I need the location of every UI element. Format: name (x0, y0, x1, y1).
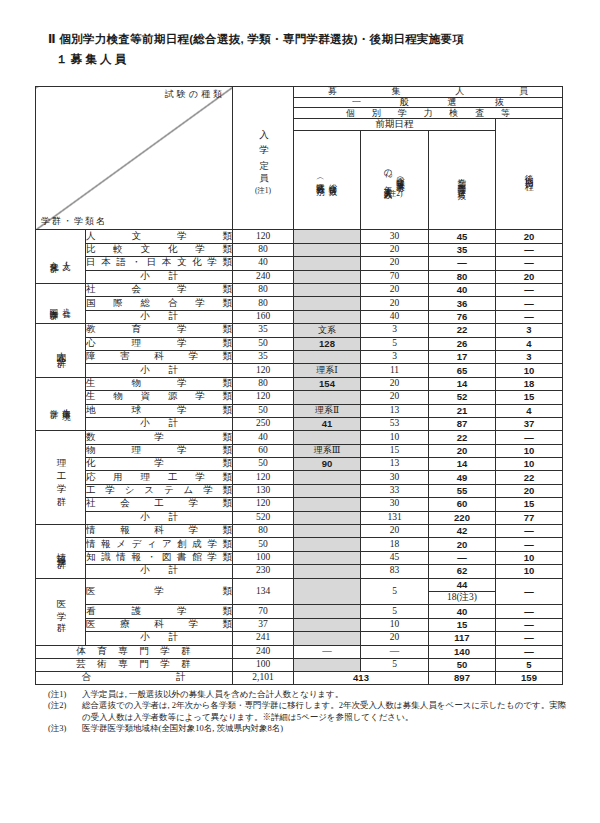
cell-late-schedule: 20 (496, 484, 563, 497)
cell-comprehensive-selection (294, 284, 361, 297)
cell-school-selection: 20 (429, 444, 496, 457)
table-row: 小 計25041538737 (36, 417, 563, 430)
group-label: 社会・ 国際学群 (36, 284, 86, 324)
cell-second-year-intake: 20 (361, 297, 429, 310)
cell-comprehensive-selection: 128 (294, 337, 361, 350)
cell-name: 医 療 科 学 類 (86, 618, 233, 631)
note-item: (注1)入学定員は, 一般選抜以外の募集人員を含めた合計人数となります。 (48, 689, 570, 701)
cell-name: 生 物 資 源 学 類 (86, 391, 233, 404)
cell-comprehensive-selection (294, 243, 361, 256)
cell-late-schedule: 18 (496, 377, 563, 390)
cell-late-schedule: — (496, 297, 563, 310)
header-admission-capacity: 入学定員 (注1) (233, 87, 294, 230)
table-row: 比 較 文 化 学 類802035— (36, 243, 563, 256)
cell-name: 工 学 シ ス テ ム 学 類 (86, 484, 233, 497)
cell-admission-capacity: 50 (233, 404, 294, 417)
cell-second-year-intake: 5 (361, 658, 429, 671)
general-selection-label: 一 般 選 抜 (294, 98, 562, 107)
table-row: 知 識 情 報 ・ 図 書 館 学 類10045—10 (36, 551, 563, 564)
cell-late-schedule: — (496, 645, 563, 658)
cell-admission-capacity: 2,101 (233, 671, 294, 684)
cell-comprehensive-selection (294, 538, 361, 551)
table-row: 小 計120理系Ⅰ116510 (36, 364, 563, 377)
table-row: 医学群医 学 類134544— (36, 578, 563, 591)
cell-second-year-intake: 5 (361, 578, 429, 605)
cell-name: 心 理 学 類 (86, 337, 233, 350)
cell-admission-capacity: 120 (233, 364, 294, 377)
cell-admission-capacity: 130 (233, 484, 294, 497)
cell-name: 応 用 理 工 学 類 (86, 471, 233, 484)
table-row: 小 計24120117— (36, 632, 563, 645)
table-row: 日 本 語 ・ 日 本 文 化 学 類4020—— (36, 257, 563, 270)
cell-school-selection: 22 (429, 431, 496, 444)
table-row: 国 際 総 合 学 類802036— (36, 297, 563, 310)
cell-school-selection: 40 (429, 284, 496, 297)
table-row: 生 物 資 源 学 類120205215 (36, 391, 563, 404)
note-item: (注2)総合選抜での入学者は, 2年次から各学類・専門学群に移行します。2年次受… (48, 700, 570, 723)
cell-name: 地 球 学 類 (86, 404, 233, 417)
cell-school-selection: 44 (429, 578, 496, 591)
table-row: 社 会 工 学 類120306015 (36, 498, 563, 511)
group-label-text: 社会・ 国際学群 (48, 302, 73, 306)
cell-second-year-intake: 20 (361, 525, 429, 538)
cell-comprehensive-selection (294, 270, 361, 283)
cell-comprehensive-selection: 理系Ⅰ (294, 364, 361, 377)
cell-name: 知 識 情 報 ・ 図 書 館 学 類 (86, 551, 233, 564)
cell-admission-capacity: 120 (233, 391, 294, 404)
cell-late-schedule: — (496, 525, 563, 538)
cell-late-schedule: — (496, 605, 563, 618)
cell-late-schedule: — (496, 310, 563, 323)
table-body: 人文・ 文化学群人 文 学 類120304520比 較 文 化 学 類80203… (36, 230, 563, 684)
cell-school-selection: 117 (429, 632, 496, 645)
table-row: 応 用 理 工 学 類120304922 (36, 471, 563, 484)
recruitment-table: 試験の種類 学群・学類名 入学定員 (注1) 募 集 人 員 一 般 選 抜 個… (35, 86, 563, 685)
cell-admission-capacity: 80 (233, 297, 294, 310)
cell-school-selection: 87 (429, 417, 496, 430)
group-label: 理工学群 (36, 431, 86, 525)
cell-admission-capacity: 100 (233, 658, 294, 671)
note-text: 総合選抜での入学者は, 2年次から各学類・専門学群に移行します。2年次受入人数は… (82, 700, 570, 723)
cell-late-schedule: — (496, 632, 563, 645)
cell-late-schedule: 5 (496, 658, 563, 671)
cell-name: 小 計 (86, 417, 233, 430)
cell-school-selection: 65 (429, 364, 496, 377)
cell-school-selection: 21 (429, 404, 496, 417)
cell-name: 体 育 専 門 学 群 (36, 645, 233, 658)
page-title: Ⅱ 個別学力検査等前期日程(総合選抜, 学類・専門学群選抜)・後期日程実施要項 (48, 32, 590, 47)
table-row: 生命環境 学群生 物 学 類80154201418 (36, 377, 563, 390)
cell-admission-capacity: 35 (233, 324, 294, 337)
cell-second-year-intake: 11 (361, 364, 429, 377)
cell-second-year-intake: 30 (361, 230, 429, 243)
cell-late-schedule: — (496, 243, 563, 256)
cell-comprehensive-selection: 理系Ⅱ (294, 404, 361, 417)
cell-school-selection: 55 (429, 484, 496, 497)
header-school-selection: 学類・専門学群選抜 (429, 131, 496, 230)
cell-school-selection: 14 (429, 377, 496, 390)
cell-school-selection: 45 (429, 230, 496, 243)
cell-school-selection: 42 (429, 525, 496, 538)
comprehensive-selection-label: 総合選抜 （選抜区分別） (315, 175, 340, 182)
cell-second-year-intake: 5 (361, 337, 429, 350)
admission-capacity-label: 入学定員 (258, 122, 268, 182)
second-year-intake-note: (注2) (361, 190, 428, 198)
cell-admission-capacity: 520 (233, 511, 294, 524)
cell-admission-capacity: 240 (233, 645, 294, 658)
cell-second-year-intake: 20 (361, 632, 429, 645)
cell-comprehensive-selection: 文系 (294, 324, 361, 337)
cell-second-year-intake: 3 (361, 324, 429, 337)
cell-comprehensive-selection (294, 551, 361, 564)
cell-late-schedule: 20 (496, 270, 563, 283)
cell-name: 人 文 学 類 (86, 230, 233, 243)
cell-second-year-intake: 131 (361, 511, 429, 524)
cell-second-year-intake: 30 (361, 471, 429, 484)
late-schedule-label: 後期日程 (523, 167, 536, 179)
cell-late-schedule: 15 (496, 391, 563, 404)
table-row: 地 球 学 類50理系Ⅱ13214 (36, 404, 563, 417)
cell-late-schedule: 10 (496, 458, 563, 471)
cell-school-selection: 22 (429, 324, 496, 337)
cell-name: 物 理 学 類 (86, 444, 233, 457)
table-row: 医 療 科 学 類371015— (36, 618, 563, 631)
cell-comprehensive-selection: 90 (294, 458, 361, 471)
cell-second-year-intake: 18 (361, 538, 429, 551)
table-row: 小 計1604076— (36, 310, 563, 323)
note-text: 入学定員は, 一般選抜以外の募集人員を含めた合計人数となります。 (82, 689, 570, 701)
cell-school-selection: — (429, 551, 496, 564)
group-label-text: 情報学群 (56, 545, 66, 555)
cell-name: 小 計 (86, 310, 233, 323)
cell-admission-capacity: 60 (233, 444, 294, 457)
cell-comprehensive-selection (294, 350, 361, 363)
corner-cell: 試験の種類 学群・学類名 (36, 87, 233, 230)
cell-school-selection: 14 (429, 458, 496, 471)
cell-late-schedule: 15 (496, 498, 563, 511)
note-item: (注3)医学群医学類地域枠(全国対象10名, 茨城県内対象8名) (48, 723, 570, 735)
table-row: 人文・ 文化学群人 文 学 類120304520 (36, 230, 563, 243)
cell-school-selection: 60 (429, 498, 496, 511)
cell-admission-capacity: 100 (233, 551, 294, 564)
cell-late-schedule: 20 (496, 230, 563, 243)
cell-school-selection: 897 (429, 671, 496, 684)
cell-second-year-intake: 10 (361, 431, 429, 444)
cell-second-year-intake: 5 (361, 605, 429, 618)
cell-name: 小 計 (86, 632, 233, 645)
cell-comprehensive-selection (294, 230, 361, 243)
cell-late-schedule: — (496, 431, 563, 444)
note-tag: (注2) (48, 700, 82, 723)
cell-admission-capacity: 80 (233, 243, 294, 256)
cell-second-year-intake: 13 (361, 404, 429, 417)
cell-name: 日 本 語 ・ 日 本 文 化 学 類 (86, 257, 233, 270)
cell-second-year-intake: 53 (361, 417, 429, 430)
table-row: 看 護 学 類70540— (36, 605, 563, 618)
cell-name: 数 学 類 (86, 431, 233, 444)
table-row: 心 理 学 類501285264 (36, 337, 563, 350)
header-early-schedule: 前期日程 (294, 119, 496, 131)
cell-name: 小 計 (86, 364, 233, 377)
cell-second-year-intake: 20 (361, 391, 429, 404)
cell-second-year-intake: 40 (361, 310, 429, 323)
group-label: 医学群 (36, 578, 86, 645)
header-individual-exam: 個 別 学 力 検 査 等 (294, 108, 563, 119)
cell-second-year-intake: 45 (361, 551, 429, 564)
cell-comprehensive-selection (294, 632, 361, 645)
table-row: 情 報 メ デ ィ ア 創 成 学 類501820— (36, 538, 563, 551)
table-row: 小 計240708020 (36, 270, 563, 283)
cell-name: 社 会 工 学 類 (86, 498, 233, 511)
cell-early-schedule-total: 413 (294, 671, 429, 684)
cell-name: 小 計 (86, 565, 233, 578)
cell-second-year-intake: — (361, 645, 429, 658)
cell-name: 小 計 (86, 270, 233, 283)
admission-capacity-note: (注1) (233, 187, 293, 195)
cell-comprehensive-selection (294, 310, 361, 323)
group-label-text: 人文・ 文化学群 (48, 255, 73, 259)
cell-name: 生 物 学 類 (86, 377, 233, 390)
cell-admission-capacity: 230 (233, 565, 294, 578)
cell-name: 合 計 (36, 671, 233, 684)
cell-late-schedule: — (496, 284, 563, 297)
cell-late-schedule: 159 (496, 671, 563, 684)
cell-late-schedule: — (496, 618, 563, 631)
cell-comprehensive-selection (294, 471, 361, 484)
note-text: 医学群医学類地域枠(全国対象10名, 茨城県内対象8名) (82, 723, 570, 735)
cell-admission-capacity: 80 (233, 284, 294, 297)
table-row: 理工学群数 学 類401022— (36, 431, 563, 444)
cell-comprehensive-selection: — (294, 645, 361, 658)
table-row: 工 学 シ ス テ ム 学 類130335520 (36, 484, 563, 497)
cell-school-selection: 76 (429, 310, 496, 323)
cell-admission-capacity: 134 (233, 578, 294, 605)
cell-second-year-intake: 30 (361, 498, 429, 511)
table-row: 小 計52013122077 (36, 511, 563, 524)
cell-second-year-intake: 20 (361, 377, 429, 390)
cell-admission-capacity: 80 (233, 377, 294, 390)
table-row: 障 害 科 学 類353173 (36, 350, 563, 363)
cell-second-year-intake: 20 (361, 284, 429, 297)
cell-second-year-intake: 70 (361, 270, 429, 283)
cell-late-schedule: — (496, 538, 563, 551)
cell-late-schedule: — (496, 578, 563, 605)
header-recruitment: 募 集 人 員 (294, 87, 563, 98)
cell-admission-capacity: 250 (233, 417, 294, 430)
cell-admission-capacity: 240 (233, 270, 294, 283)
cell-name: 小 計 (86, 511, 233, 524)
cell-school-selection: 220 (429, 511, 496, 524)
cell-school-selection: 15 (429, 618, 496, 631)
cell-name: 国 際 総 合 学 類 (86, 297, 233, 310)
cell-second-year-intake: 83 (361, 565, 429, 578)
group-label-text: 医学群 (56, 593, 66, 627)
cell-late-schedule: 10 (496, 551, 563, 564)
cell-admission-capacity: 40 (233, 257, 294, 270)
cell-late-schedule: 4 (496, 337, 563, 350)
cell-school-selection: 26 (429, 337, 496, 350)
cell-comprehensive-selection (294, 257, 361, 270)
row-total: 合 計2,101413897159 (36, 671, 563, 684)
cell-late-schedule: — (496, 257, 563, 270)
cell-comprehensive-selection (294, 565, 361, 578)
cell-admission-capacity: 35 (233, 350, 294, 363)
cell-name: 看 護 学 類 (86, 605, 233, 618)
group-label: 人間学群 (36, 324, 86, 378)
cell-school-selection: 80 (429, 270, 496, 283)
cell-late-schedule: 3 (496, 324, 563, 337)
cell-admission-capacity: 70 (233, 605, 294, 618)
cell-late-schedule: 22 (496, 471, 563, 484)
cell-comprehensive-selection (294, 431, 361, 444)
cell-second-year-intake: 15 (361, 444, 429, 457)
cell-late-schedule: 77 (496, 511, 563, 524)
cell-late-schedule: 10 (496, 444, 563, 457)
cell-name: 障 害 科 学 類 (86, 350, 233, 363)
cell-comprehensive-selection (294, 605, 361, 618)
group-label-text: 理工学群 (56, 450, 66, 503)
cell-name: 医 学 類 (86, 578, 233, 605)
page-subtitle: １ 募 集 人 員 (56, 52, 600, 67)
table-row: 物 理 学 類60理系Ⅲ152010 (36, 444, 563, 457)
note-tag: (注3) (48, 723, 82, 735)
cell-school-selection: 52 (429, 391, 496, 404)
cell-school-selection: 20 (429, 538, 496, 551)
cell-second-year-intake: 3 (361, 350, 429, 363)
cell-name: 教 育 学 類 (86, 324, 233, 337)
note-tag: (注1) (48, 689, 82, 701)
table-row: 社会・ 国際学群社 会 学 類802040— (36, 284, 563, 297)
table-row: 人間学群教 育 学 類35文系3223 (36, 324, 563, 337)
cell-school-selection: 17 (429, 350, 496, 363)
corner-exam-type-label: 試験の種類 (165, 90, 225, 99)
cell-admission-capacity: 37 (233, 618, 294, 631)
cell-late-schedule: 10 (496, 565, 563, 578)
row-arts: 芸 術 専 門 学 群1005505 (36, 658, 563, 671)
group-label: 生命環境 学群 (36, 377, 86, 431)
cell-comprehensive-selection (294, 391, 361, 404)
table-header: 試験の種類 学群・学類名 入学定員 (注1) 募 集 人 員 一 般 選 抜 個… (36, 87, 563, 230)
cell-comprehensive-selection (294, 511, 361, 524)
cell-comprehensive-selection (294, 658, 361, 671)
group-label-text: 人間学群 (56, 344, 66, 354)
cell-admission-capacity: 120 (233, 230, 294, 243)
cell-second-year-intake: 20 (361, 243, 429, 256)
group-label: 人文・ 文化学群 (36, 230, 86, 284)
cell-name: 情 報 メ デ ィ ア 創 成 学 類 (86, 538, 233, 551)
cell-second-year-intake: 13 (361, 458, 429, 471)
header-comprehensive-selection: 総合選抜 （選抜区分別） (294, 131, 361, 230)
cell-name: 化 学 類 (86, 458, 233, 471)
recruitment-label: 募 集 人 員 (294, 87, 562, 96)
cell-late-schedule: 4 (496, 404, 563, 417)
cell-school-selection: 50 (429, 658, 496, 671)
cell-school-selection-regional: 18(注3) (429, 591, 496, 604)
cell-name: 比 較 文 化 学 類 (86, 243, 233, 256)
cell-comprehensive-selection (294, 578, 361, 605)
cell-second-year-intake: 20 (361, 257, 429, 270)
cell-late-schedule: 37 (496, 417, 563, 430)
cell-admission-capacity: 160 (233, 310, 294, 323)
cell-admission-capacity: 50 (233, 538, 294, 551)
cell-admission-capacity: 241 (233, 632, 294, 645)
cell-comprehensive-selection (294, 498, 361, 511)
cell-late-schedule: 10 (496, 364, 563, 377)
notes-section: (注1)入学定員は, 一般選抜以外の募集人員を含めた合計人数となります。(注2)… (48, 689, 570, 735)
cell-school-selection: 36 (429, 297, 496, 310)
cell-comprehensive-selection (294, 484, 361, 497)
cell-comprehensive-selection: 154 (294, 377, 361, 390)
table-row: 情報学群情 報 科 学 類802042— (36, 525, 563, 538)
header-general-selection: 一 般 選 抜 (294, 98, 563, 108)
cell-school-selection: 40 (429, 605, 496, 618)
cell-second-year-intake: 10 (361, 618, 429, 631)
cell-comprehensive-selection: 41 (294, 417, 361, 430)
header-late-schedule: 後期日程 (496, 119, 563, 230)
cell-late-schedule: 3 (496, 350, 563, 363)
cell-comprehensive-selection (294, 618, 361, 631)
cell-admission-capacity: 50 (233, 337, 294, 350)
cell-comprehensive-selection (294, 297, 361, 310)
school-selection-label: 学類・専門学群選抜 (456, 172, 469, 186)
cell-admission-capacity: 50 (233, 458, 294, 471)
row-sports: 体 育 専 門 学 群240——140— (36, 645, 563, 658)
group-label-text: 生命環境 学群 (48, 402, 73, 406)
cell-admission-capacity: 120 (233, 498, 294, 511)
cell-name: 社 会 学 類 (86, 284, 233, 297)
header-second-year-intake: 総合選抜（入学者） の2年次受入人数 (注2) (361, 131, 429, 230)
cell-school-selection: 35 (429, 243, 496, 256)
cell-comprehensive-selection: 理系Ⅲ (294, 444, 361, 457)
group-label: 情報学群 (36, 525, 86, 579)
table-row: 化 学 類5090131410 (36, 458, 563, 471)
cell-school-selection: — (429, 257, 496, 270)
corner-group-name-label: 学群・学類名 (41, 217, 107, 226)
cell-school-selection: 62 (429, 565, 496, 578)
cell-second-year-intake: 33 (361, 484, 429, 497)
cell-school-selection: 49 (429, 471, 496, 484)
cell-comprehensive-selection (294, 525, 361, 538)
cell-name: 芸 術 専 門 学 群 (36, 658, 233, 671)
cell-name: 情 報 科 学 類 (86, 525, 233, 538)
cell-admission-capacity: 120 (233, 471, 294, 484)
second-year-intake-label: 総合選抜（入学者） の2年次受入人数 (382, 163, 407, 185)
individual-exam-label: 個 別 学 力 検 査 等 (294, 109, 562, 118)
cell-admission-capacity: 80 (233, 525, 294, 538)
table-row: 小 計230836210 (36, 565, 563, 578)
cell-admission-capacity: 40 (233, 431, 294, 444)
cell-school-selection: 140 (429, 645, 496, 658)
